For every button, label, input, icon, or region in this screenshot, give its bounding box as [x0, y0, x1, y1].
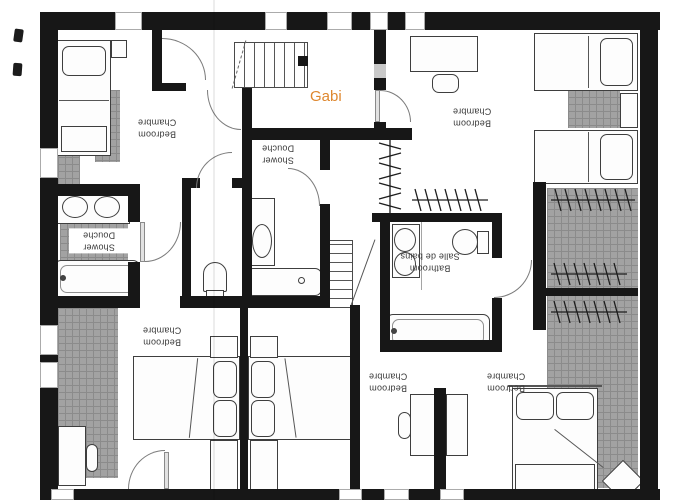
room-label-en: Bedroom — [487, 383, 525, 393]
hanger-rail-icon — [549, 298, 629, 326]
wall — [434, 388, 446, 500]
blanket-fold — [588, 36, 589, 88]
wall — [374, 30, 386, 64]
stair-diagonal — [351, 239, 376, 305]
pillow — [516, 392, 554, 420]
window — [440, 489, 464, 500]
room-label-en: Bedroom — [369, 383, 407, 393]
room-label-bedroom-bottom-middle: Bedroom Chambre — [348, 370, 428, 393]
hanger-rail-icon — [376, 138, 404, 216]
room-label-en: Bathroom — [410, 263, 451, 273]
chair — [398, 412, 411, 439]
toilet — [203, 262, 227, 292]
faucet — [391, 328, 397, 334]
shower-tray — [246, 268, 322, 296]
pillow — [600, 134, 633, 180]
door-arc — [288, 168, 320, 206]
toilet-tank — [477, 231, 489, 254]
floor-plan: Bedroom Chambre Shower Douche Bedroom Ch… — [0, 0, 700, 500]
wall — [242, 88, 252, 308]
window — [40, 325, 58, 355]
sink — [252, 224, 272, 258]
room-label-fr: Salle de bains — [400, 252, 459, 262]
pillow — [213, 400, 237, 437]
window — [40, 362, 58, 388]
desk — [410, 36, 478, 72]
sink — [62, 196, 88, 218]
door-arc — [494, 260, 532, 298]
window — [265, 12, 287, 30]
stair-newel-post — [298, 56, 308, 66]
wall — [380, 222, 390, 352]
bathtub-inner — [60, 265, 134, 293]
room-label-fr: Chambre — [143, 326, 181, 336]
room-label-bathroom: Bathroom Salle de bains — [390, 250, 470, 273]
room-label-fr: Douche — [83, 231, 115, 241]
wall-outer-right — [640, 12, 658, 500]
door-arc — [162, 38, 206, 80]
wall — [320, 204, 330, 308]
room-label-bedroom-top-left: Bedroom Chambre — [117, 116, 197, 139]
chair — [86, 444, 98, 472]
room-label-shower-middle: Shower Douche — [238, 142, 318, 165]
room-label-en: Bedroom — [143, 337, 181, 347]
room-label-bedroom-bottom-left: Bedroom Chambre — [122, 324, 202, 347]
faucet — [60, 275, 66, 281]
sink — [394, 228, 416, 252]
room-label-bedroom-bottom-right: Bedroom Chambre — [466, 370, 546, 393]
room-label-bedroom-top-right: Bedroom Chambre — [432, 105, 512, 128]
door-arc — [145, 222, 181, 262]
blanket-fold — [588, 132, 589, 182]
room-label-fr: Douche — [262, 144, 294, 154]
pillow — [556, 392, 594, 420]
wall — [320, 140, 330, 170]
wall — [232, 178, 242, 188]
chair — [432, 74, 459, 93]
wall — [152, 30, 162, 90]
wall — [128, 184, 140, 222]
window — [405, 12, 425, 30]
room-label-shower-left: Shower Douche — [69, 228, 129, 253]
hanger-rail-icon — [549, 186, 637, 214]
scan-artifact — [13, 63, 23, 77]
sink — [94, 196, 120, 218]
pillow — [251, 361, 275, 398]
room-label-fr: Chambre — [369, 372, 407, 382]
wall-outer-left — [40, 12, 58, 500]
window — [51, 489, 74, 500]
dresser — [446, 394, 468, 456]
scan-artifact — [13, 28, 24, 42]
room-label-fr: Chambre — [487, 372, 525, 382]
blanket — [61, 126, 107, 152]
annotation-gabi: Gabi — [310, 88, 342, 105]
window — [40, 148, 58, 178]
wall — [533, 182, 546, 330]
wall — [492, 213, 502, 258]
window — [384, 489, 409, 500]
wall — [374, 78, 386, 90]
staircase-lower — [328, 240, 353, 308]
wall — [180, 296, 330, 308]
room-label-en: Bedroom — [453, 118, 491, 128]
room-label-fr: Chambre — [453, 107, 491, 117]
fold-crease — [213, 0, 215, 500]
window — [115, 12, 142, 30]
wall — [240, 300, 248, 500]
wall — [380, 340, 502, 352]
pillow — [600, 38, 633, 86]
shower-drain — [298, 277, 305, 284]
wall — [152, 83, 186, 91]
room-label-fr: Chambre — [138, 118, 176, 128]
blanket-fold — [59, 100, 109, 101]
window-sidelight — [374, 64, 386, 78]
nightstand — [111, 40, 127, 58]
nightstand — [620, 93, 638, 128]
staircase-upper — [234, 42, 308, 88]
pillow — [62, 46, 106, 76]
wall — [545, 288, 638, 296]
door-arc — [380, 90, 411, 122]
tile-floor — [568, 90, 620, 128]
room-label-en: Shower — [83, 242, 115, 252]
desk — [410, 394, 436, 456]
wall — [56, 296, 140, 308]
room-label-en: Shower — [262, 155, 294, 165]
window — [339, 489, 362, 500]
room-label-en: Bedroom — [138, 129, 176, 139]
desk — [58, 426, 86, 486]
pillow — [251, 400, 275, 437]
door-arc — [128, 450, 165, 489]
nightstand — [250, 336, 278, 358]
wall — [350, 305, 360, 500]
pillow — [213, 361, 237, 398]
hanger-rail-icon — [549, 260, 629, 288]
window — [370, 12, 388, 30]
wall — [182, 178, 191, 308]
hanger-rail-icon — [410, 186, 490, 214]
wardrobe — [250, 440, 278, 496]
window — [327, 12, 352, 30]
